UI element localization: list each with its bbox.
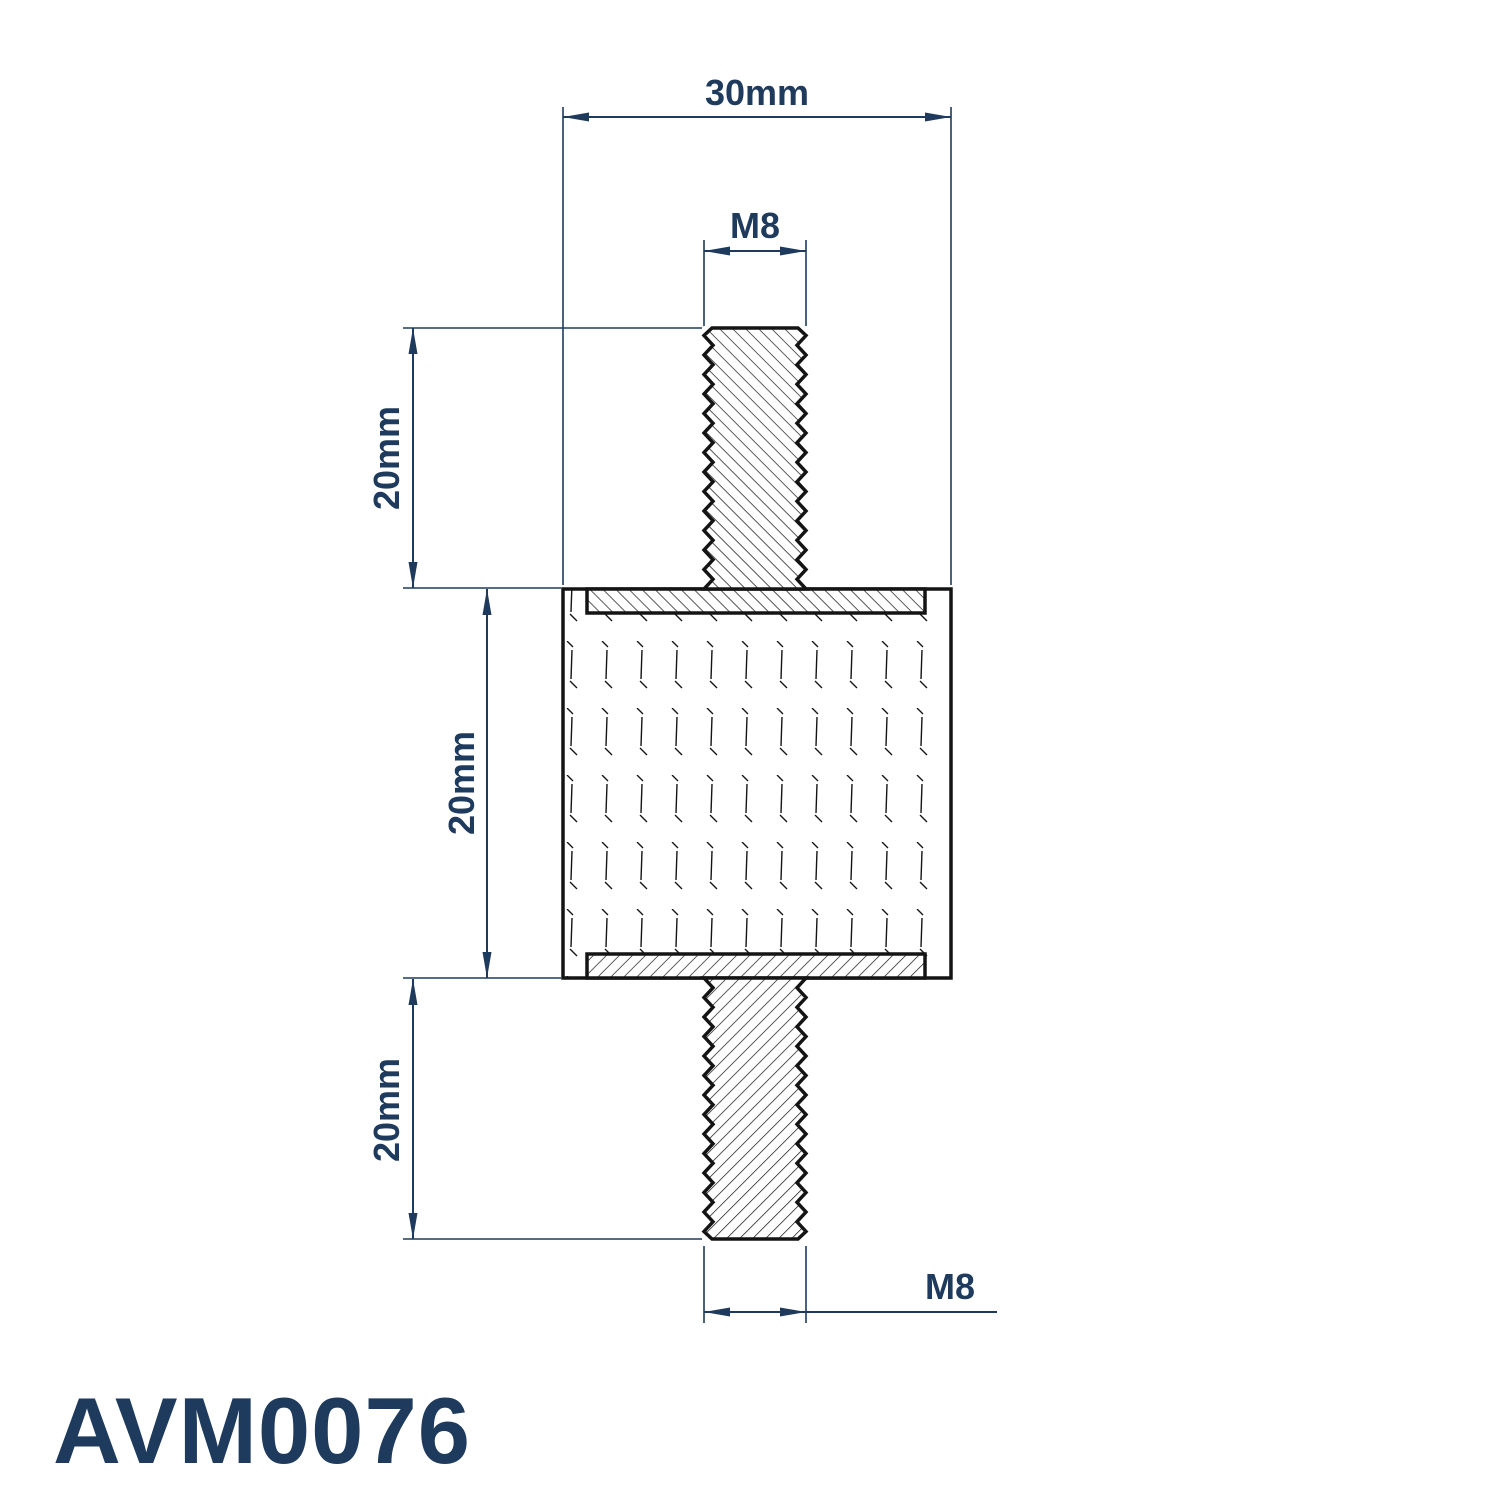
dim-label-body-height: 20mm <box>441 731 482 835</box>
dim-label-top-thread: M8 <box>730 205 780 246</box>
part-number-label: AVM0076 <box>53 1378 471 1483</box>
rubber-body <box>563 589 951 978</box>
dimension-bottom-thread: M8 <box>704 1246 997 1323</box>
arrowhead-down <box>409 562 418 588</box>
dim-label-bottom-stud-length: 20mm <box>366 1058 407 1162</box>
dimension-top-thread: M8 <box>704 205 806 326</box>
drawing-canvas: 30mm M8 20mm 20mm 20mm <box>0 0 1500 1500</box>
arrowhead-up <box>409 979 418 1005</box>
arrowhead-down <box>409 1213 418 1239</box>
technical-drawing: 30mm M8 20mm 20mm 20mm <box>0 0 1500 1500</box>
arrowhead-right <box>780 1308 806 1317</box>
top-stud <box>704 328 806 589</box>
top-plate <box>587 589 925 613</box>
bottom-plate <box>587 954 925 978</box>
dim-label-top-stud-length: 20mm <box>366 406 407 510</box>
arrowhead-up <box>483 589 492 615</box>
arrowhead-down <box>483 952 492 978</box>
dimension-bottom-stud-length: 20mm <box>366 979 702 1239</box>
dimension-top-stud-length: 20mm <box>366 328 702 588</box>
dim-label-bottom-thread: M8 <box>925 1266 975 1307</box>
mount-part <box>563 328 951 1239</box>
dim-label-overall-width: 30mm <box>705 72 809 113</box>
dimension-body-height: 20mm <box>403 589 561 978</box>
arrowhead-left <box>704 247 730 256</box>
arrowhead-right <box>780 247 806 256</box>
arrowhead-up <box>409 328 418 354</box>
bottom-stud <box>704 978 806 1239</box>
arrowhead-left <box>563 113 589 122</box>
arrowhead-left <box>704 1308 730 1317</box>
arrowhead-right <box>925 113 951 122</box>
